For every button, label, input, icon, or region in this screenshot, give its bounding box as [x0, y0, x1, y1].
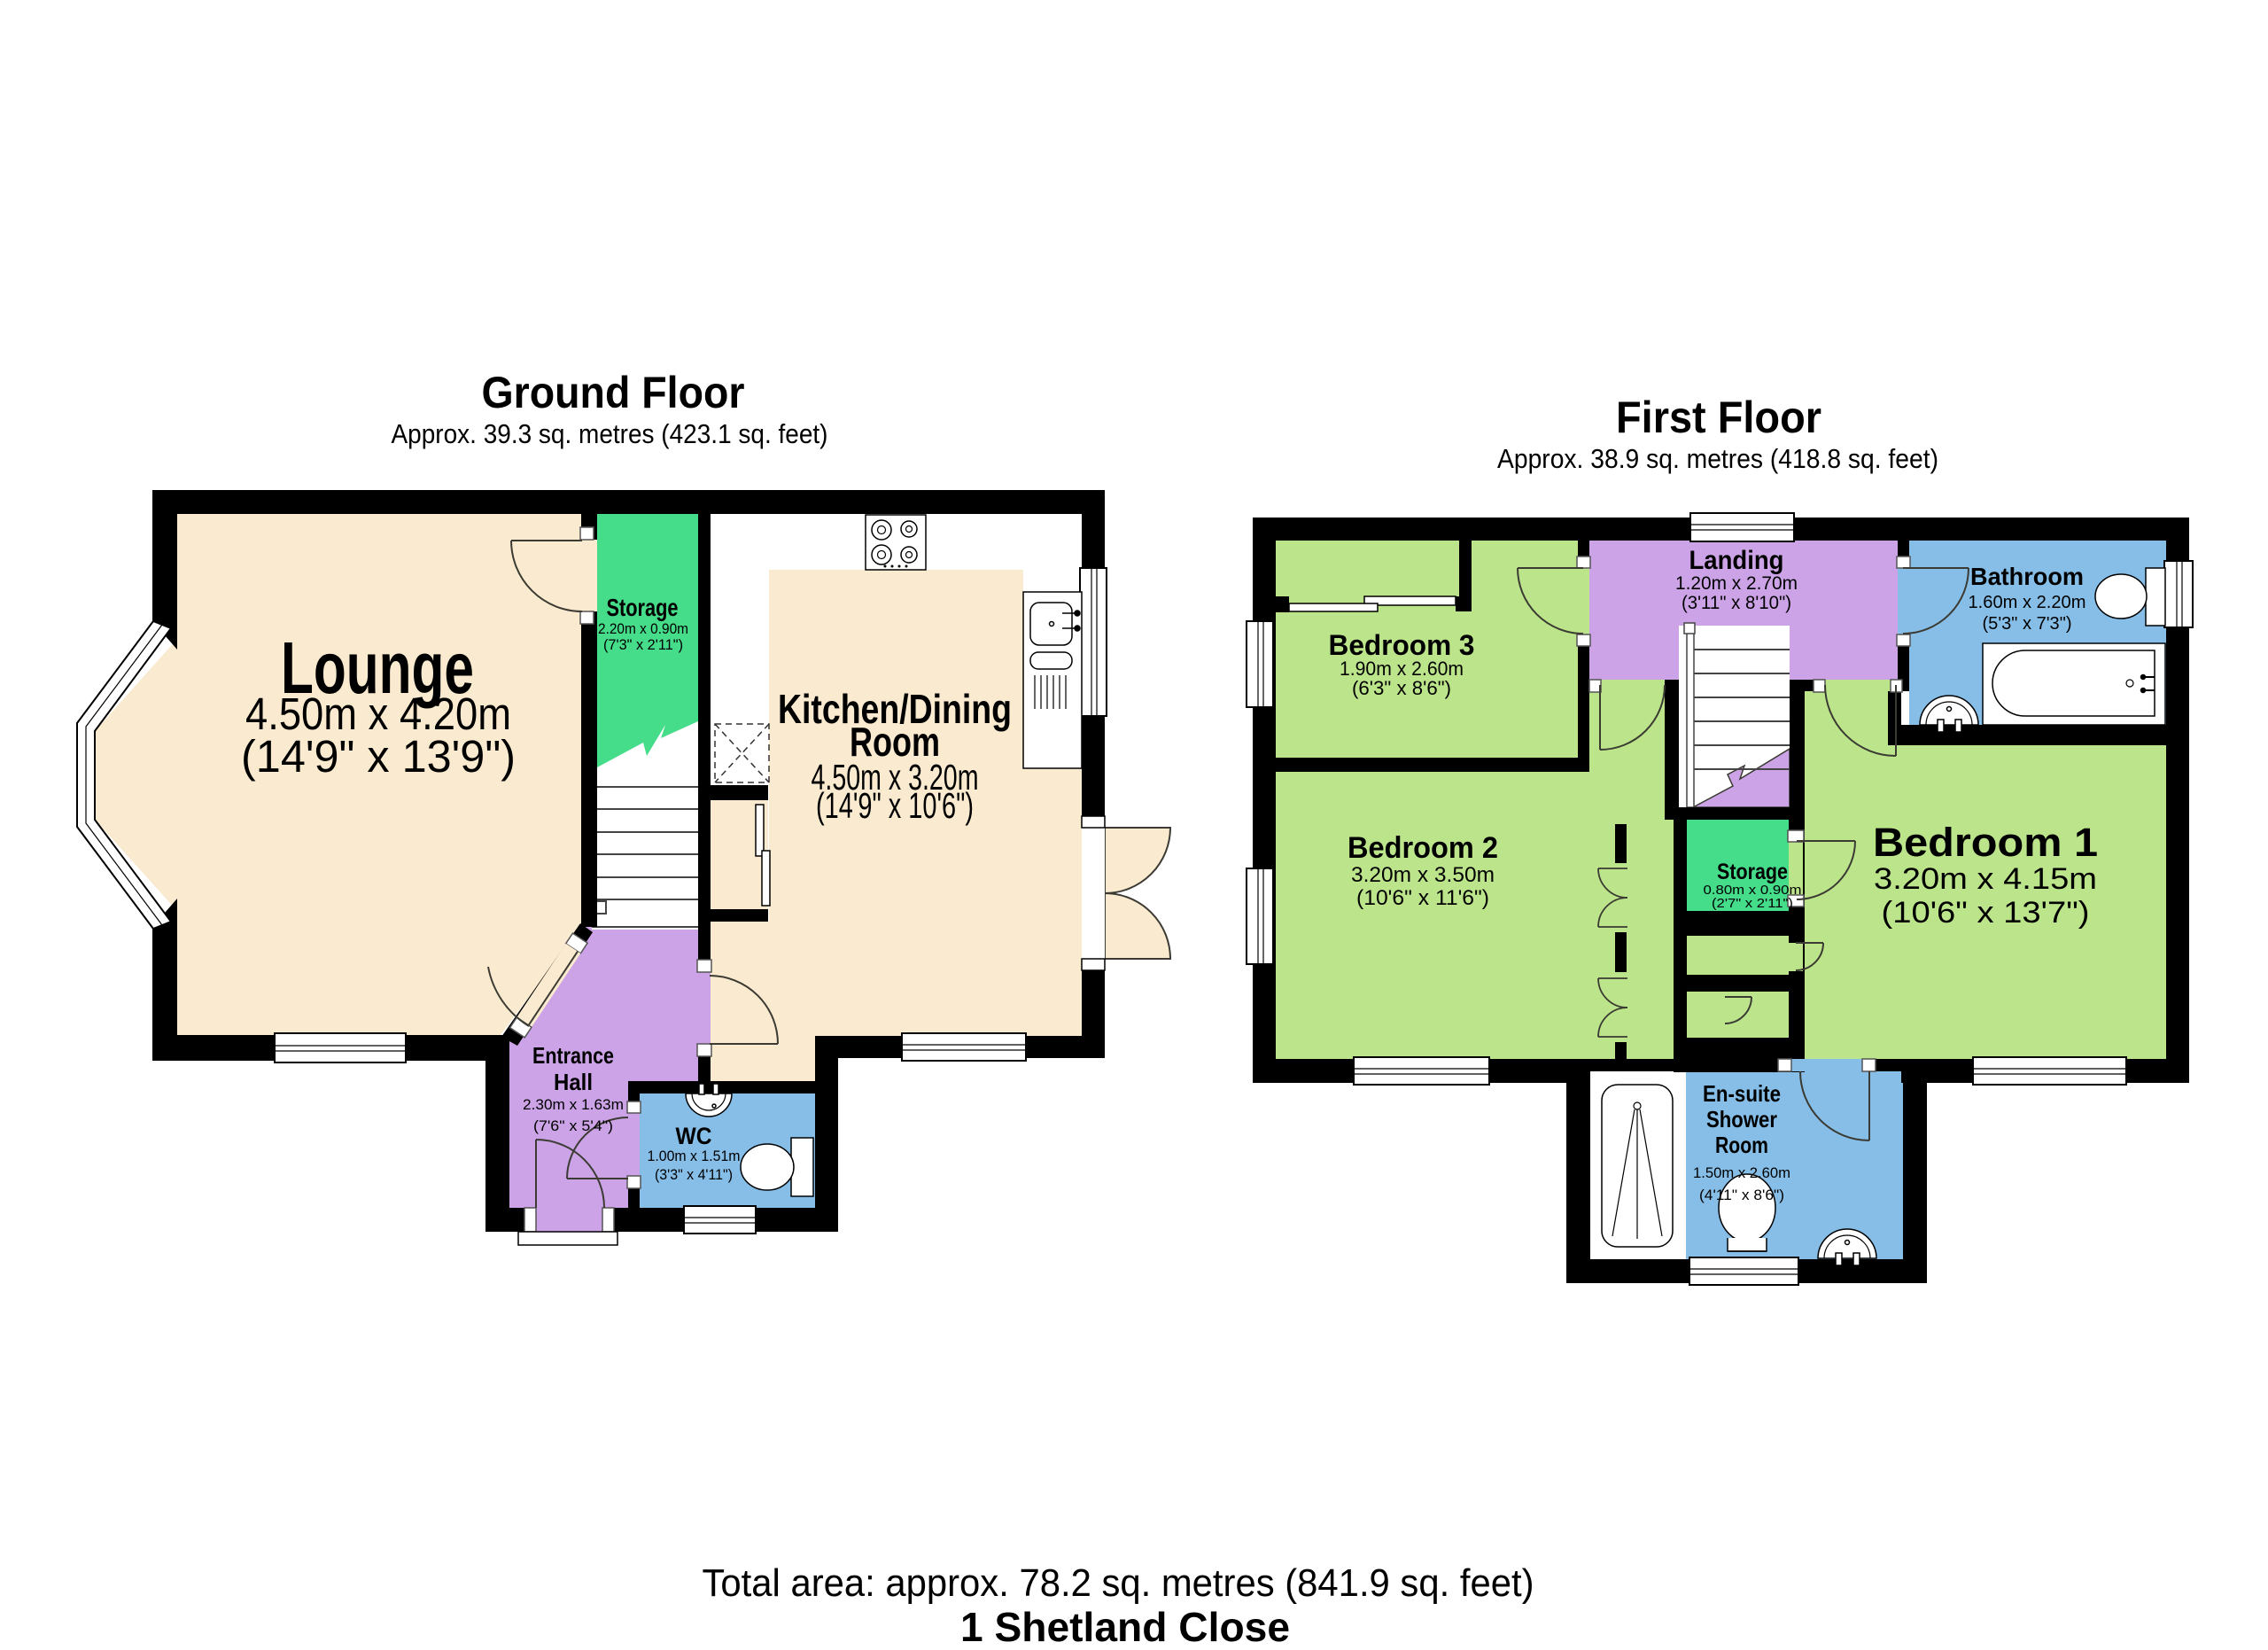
svg-text:Landing: Landing [1689, 546, 1784, 575]
svg-text:WC: WC [676, 1123, 712, 1149]
svg-text:Total area: approx. 78.2 sq. m: Total area: approx. 78.2 sq. metres (841… [703, 1561, 1534, 1605]
svg-text:Shower: Shower [1706, 1106, 1777, 1132]
svg-text:(14'9" x 10'6"): (14'9" x 10'6") [816, 785, 974, 826]
svg-text:Approx. 38.9 sq. metres (418.8: Approx. 38.9 sq. metres (418.8 sq. feet) [1497, 443, 1938, 474]
svg-text:Ground Floor: Ground Floor [482, 368, 745, 417]
svg-text:(3'3" x 4'11"): (3'3" x 4'11") [655, 1166, 733, 1183]
svg-text:(5'3" x 7'3"): (5'3" x 7'3") [1983, 614, 2072, 634]
svg-text:(3'11" x 8'10"): (3'11" x 8'10") [1682, 593, 1791, 613]
svg-text:Storage: Storage [607, 594, 679, 621]
svg-text:1 Shetland Close: 1 Shetland Close [960, 1604, 1290, 1650]
svg-text:1.60m x 2.20m: 1.60m x 2.20m [1969, 593, 2086, 612]
svg-text:(10'6" x 11'6"): (10'6" x 11'6") [1356, 886, 1489, 910]
svg-text:Bedroom 2: Bedroom 2 [1348, 831, 1498, 865]
svg-text:Room: Room [1715, 1132, 1768, 1158]
svg-text:Bedroom 1: Bedroom 1 [1873, 820, 2098, 865]
svg-text:(7'3" x 2'11"): (7'3" x 2'11") [603, 636, 683, 653]
svg-text:2.20m x 0.90m: 2.20m x 0.90m [598, 620, 688, 637]
svg-text:Bedroom 3: Bedroom 3 [1329, 629, 1475, 661]
svg-text:(14'9" x 13'9"): (14'9" x 13'9") [241, 731, 516, 782]
svg-text:Hall: Hall [554, 1069, 593, 1095]
svg-text:(7'6" x 5'4"): (7'6" x 5'4") [533, 1117, 613, 1134]
svg-text:(10'6" x 13'7"): (10'6" x 13'7") [1882, 896, 2090, 930]
svg-text:Bathroom: Bathroom [1970, 563, 2084, 590]
svg-text:1.20m x 2.70m: 1.20m x 2.70m [1675, 573, 1798, 594]
svg-text:First Floor: First Floor [1616, 393, 1821, 442]
svg-text:3.20m x 4.15m: 3.20m x 4.15m [1874, 862, 2097, 896]
svg-text:(6'3" x 8'6"): (6'3" x 8'6") [1352, 677, 1451, 699]
svg-text:Approx. 39.3 sq. metres (423.1: Approx. 39.3 sq. metres (423.1 sq. feet) [392, 418, 828, 449]
svg-text:Entrance: Entrance [532, 1042, 614, 1069]
svg-text:En-suite: En-suite [1703, 1080, 1781, 1107]
svg-text:Storage: Storage [1717, 860, 1788, 884]
svg-text:2.30m x 1.63m: 2.30m x 1.63m [523, 1096, 624, 1113]
svg-text:(4'11" x 8'6"): (4'11" x 8'6") [1699, 1187, 1784, 1203]
svg-text:3.20m x 3.50m: 3.20m x 3.50m [1351, 863, 1495, 887]
svg-text:(2'7" x 2'11"): (2'7" x 2'11") [1712, 896, 1793, 911]
svg-text:1.00m x 1.51m: 1.00m x 1.51m [648, 1148, 741, 1164]
svg-text:1.50m x 2.60m: 1.50m x 2.60m [1693, 1164, 1790, 1181]
